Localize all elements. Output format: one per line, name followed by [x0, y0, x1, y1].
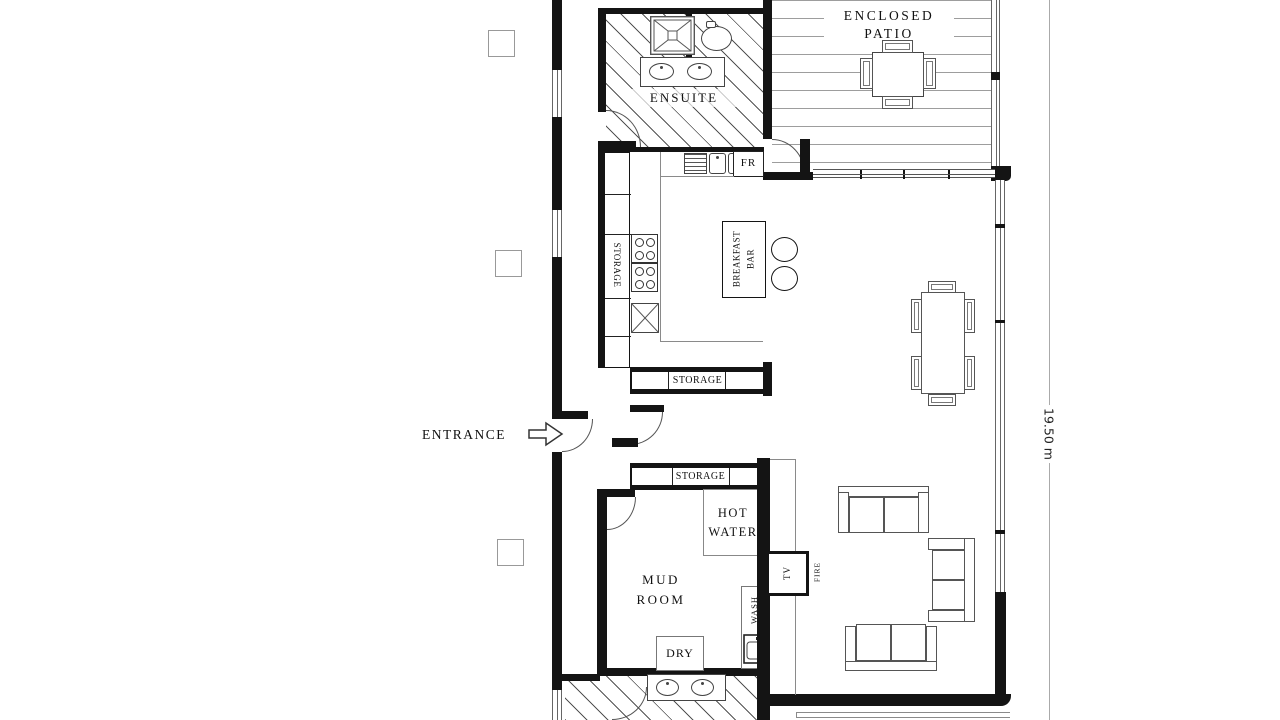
wall [763, 172, 813, 180]
wall [995, 224, 1005, 228]
wall [768, 694, 1011, 706]
sofa-arm [918, 492, 929, 533]
burner [646, 238, 655, 247]
counter-edge [660, 176, 734, 177]
dining-chair [928, 281, 956, 293]
enclosed-patio-line1: ENCLOSED [844, 8, 935, 23]
appliance-icon [631, 303, 659, 333]
entrance-label: ENTRANCE [420, 426, 508, 444]
sofa-arm [926, 626, 937, 666]
glazing-bar [903, 170, 905, 179]
counter-edge [660, 341, 763, 342]
sofa-back [838, 486, 929, 497]
fireplace-edge [770, 459, 796, 460]
enclosed-patio-label: ENCLOSED PATIO [824, 6, 954, 44]
sink-bowl-icon [709, 153, 726, 174]
hall-storage-top-label: STORAGE [655, 374, 740, 388]
burner [646, 280, 655, 289]
sink-drainer-icon [684, 153, 707, 174]
veranda-post [497, 539, 524, 566]
patio-chair [923, 58, 936, 89]
dining-chair [928, 394, 956, 406]
glazing-bar [860, 170, 862, 179]
glazing-bar [948, 170, 950, 179]
burner [635, 267, 644, 276]
stool-icon [771, 266, 798, 291]
mud-room-line1: MUD [642, 572, 680, 587]
deck-edge [796, 717, 1010, 718]
enclosed-patio-line2: PATIO [864, 26, 914, 41]
hot-water-line2: WATER [708, 525, 757, 539]
sofa-cushion [884, 497, 919, 533]
wall [995, 592, 1006, 702]
deck-edge [796, 712, 1010, 713]
toilet-icon [701, 26, 732, 51]
burner [635, 251, 644, 260]
wall [995, 320, 1005, 323]
shelf-divider [605, 194, 631, 195]
ensuite-label: ENSUITE [630, 89, 738, 107]
veranda-post [488, 30, 515, 57]
burner [646, 251, 655, 260]
wall [763, 362, 772, 396]
sofa-arm [928, 610, 965, 622]
sofa-cushion [849, 497, 884, 533]
cooktop-icon [631, 234, 658, 263]
window [552, 70, 562, 117]
shelf-divider [605, 336, 631, 337]
burner [646, 267, 655, 276]
dining-table [921, 292, 965, 394]
breakfast-bar-label: BREAKFAST BAR [730, 231, 759, 287]
sofa-arm [928, 538, 965, 550]
patio-chair [882, 40, 913, 53]
wall [995, 530, 1005, 534]
wall [598, 8, 606, 112]
dining-chair [911, 299, 922, 333]
dryer-label: DRY [656, 645, 704, 661]
tv-label: TV [782, 566, 792, 580]
sofa-cushion [932, 580, 965, 610]
shower-icon [650, 16, 695, 55]
floor-plan: ENTRANCE ENSUITE ENCLOSED PATIO [0, 0, 1280, 720]
wall [763, 0, 772, 139]
sofa-cushion [856, 624, 891, 661]
cooktop-icon [631, 263, 658, 292]
patio-window [991, 0, 1000, 166]
sofa-back [964, 538, 975, 622]
fridge-label: FR [733, 156, 764, 171]
mudroom-door-swing [607, 497, 636, 530]
window [552, 210, 562, 257]
breakfast-bar-line2: BAR [746, 249, 756, 269]
living-room-glass-wall [813, 169, 995, 178]
hot-water-line1: HOT [718, 506, 748, 520]
dining-chair [964, 299, 975, 333]
mud-room-label: MUD ROOM [606, 570, 716, 610]
fireplace-label: FIRE [813, 562, 822, 582]
patio-table [872, 52, 924, 97]
patio-chair [860, 58, 873, 89]
patio-chair [882, 96, 913, 109]
wall [598, 8, 772, 14]
hall-storage-bottom-label: STORAGE [658, 470, 743, 484]
sofa-arm [838, 492, 849, 533]
shelf-divider [605, 298, 631, 299]
dining-chair [911, 356, 922, 390]
wall [800, 139, 810, 175]
basin-icon [656, 679, 679, 696]
burner [635, 280, 644, 289]
wall [612, 438, 638, 447]
basin-icon [691, 679, 714, 696]
sofa-cushion [932, 550, 965, 580]
basin-icon [649, 63, 674, 80]
dimension-line [1049, 0, 1050, 720]
mud-room-line2: ROOM [636, 592, 685, 607]
basin-icon [687, 63, 712, 80]
entrance-arrow-icon [527, 419, 565, 449]
kitchen-pantry-label: STORAGE [612, 243, 622, 288]
wall [560, 674, 600, 681]
window [552, 690, 562, 720]
stool-icon [771, 237, 798, 262]
sofa-back [845, 661, 937, 671]
toilet-cistern [706, 21, 716, 28]
breakfast-bar-line1: BREAKFAST [732, 231, 742, 287]
sofa-arm [845, 626, 856, 666]
deck-edge [796, 712, 797, 718]
shelf-divider [605, 234, 631, 235]
counter-edge [660, 152, 661, 342]
sofa-cushion [891, 624, 926, 661]
dining-chair [964, 356, 975, 390]
dimension-label: 19.50 m [1042, 405, 1057, 463]
entrance-door-swing [562, 419, 593, 452]
wall [991, 72, 1000, 80]
burner [635, 238, 644, 247]
wall [553, 411, 588, 419]
wall [630, 405, 664, 412]
veranda-post [495, 250, 522, 277]
